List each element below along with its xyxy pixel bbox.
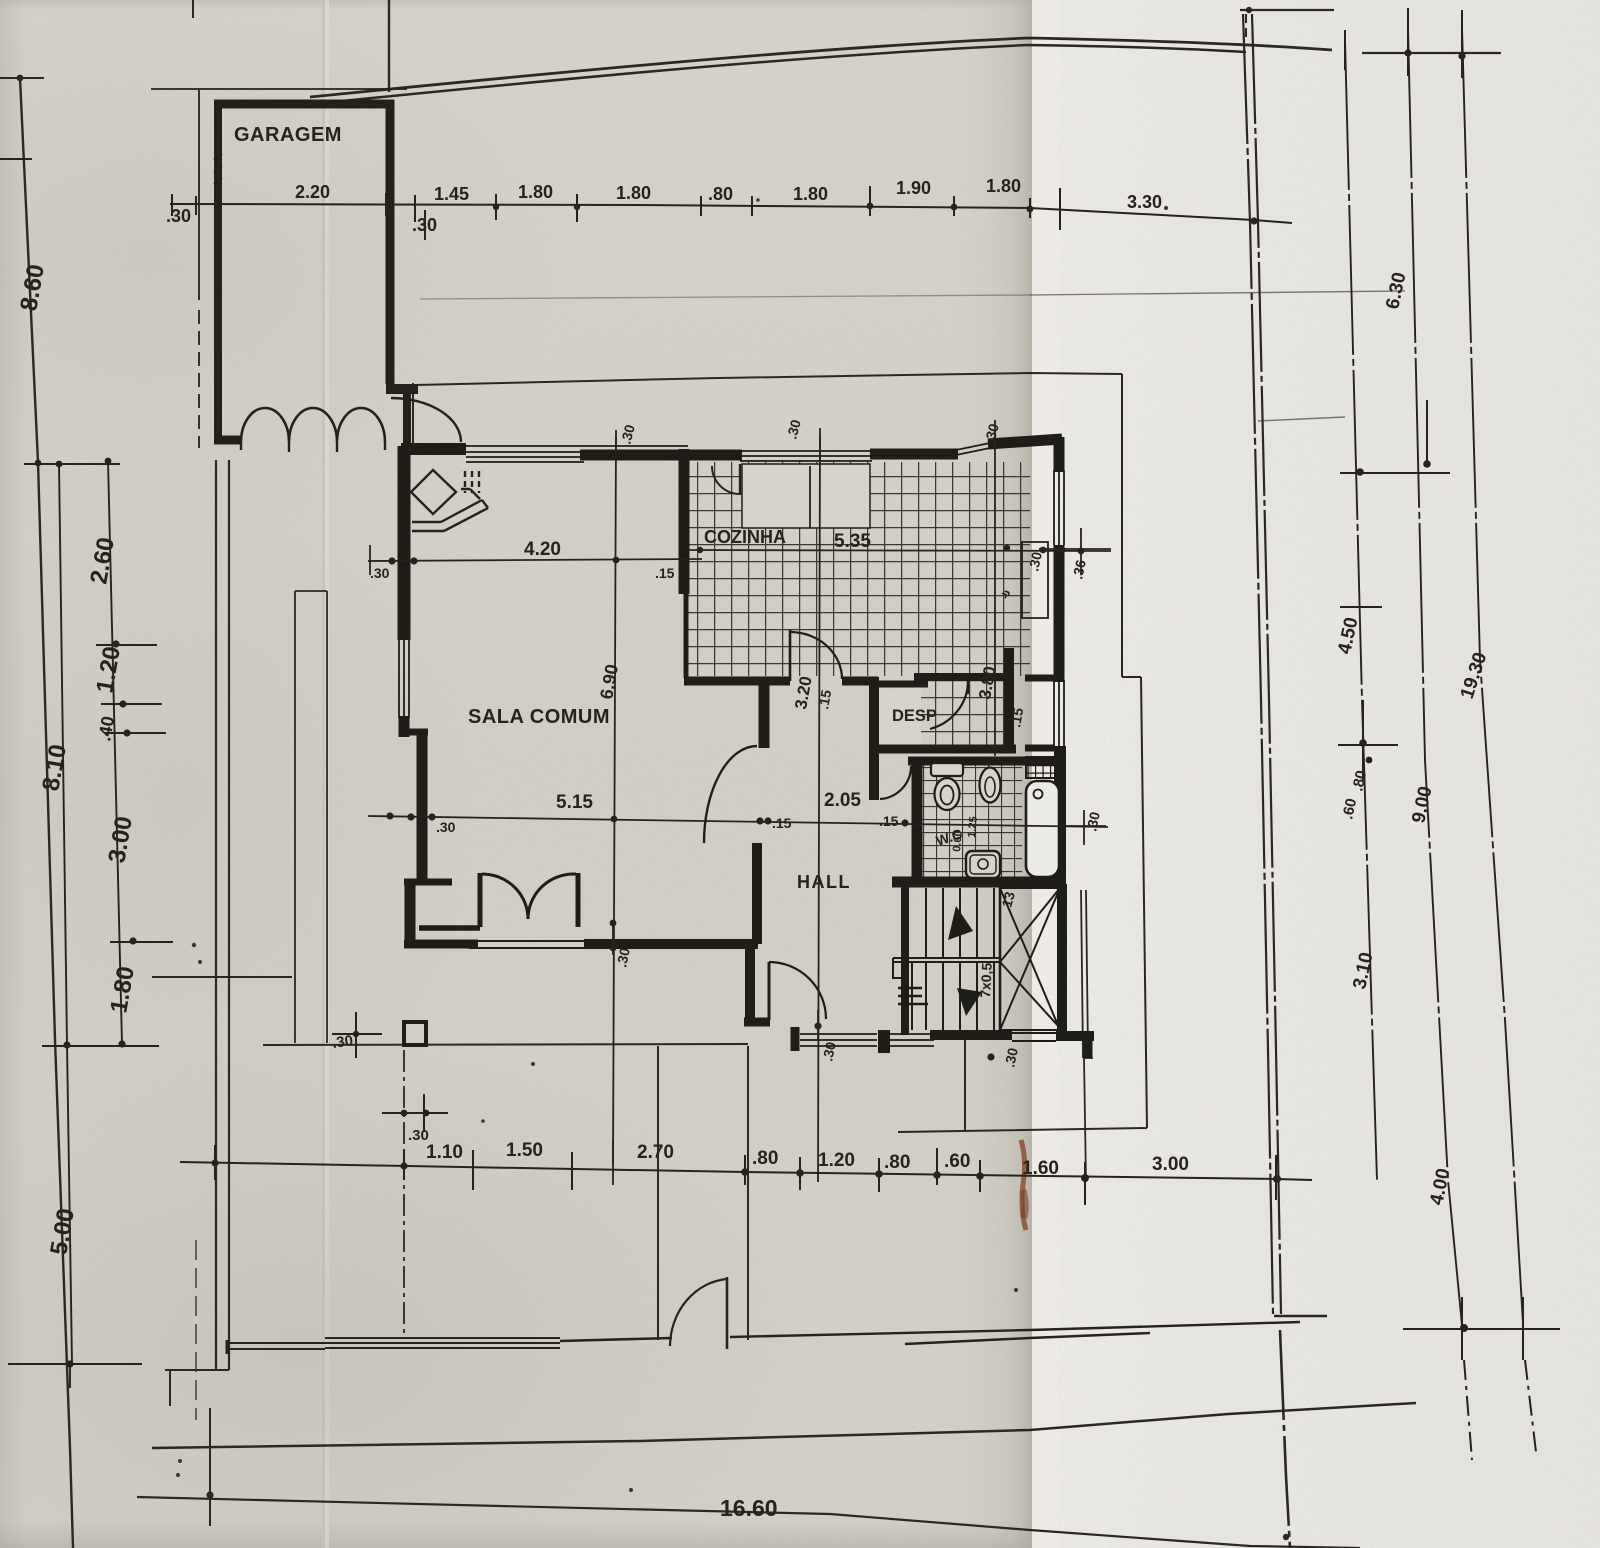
- svg-text:1.10: 1.10: [426, 1142, 463, 1163]
- svg-text:GARAGEM: GARAGEM: [234, 124, 342, 146]
- svg-text:.30: .30: [412, 215, 437, 235]
- svg-text:.30: .30: [370, 565, 390, 581]
- svg-text:2.05: 2.05: [824, 790, 861, 811]
- svg-text:.15: .15: [879, 813, 899, 829]
- svg-text:1.80: 1.80: [616, 183, 651, 203]
- svg-text:16.60: 16.60: [720, 1495, 778, 1521]
- svg-text:2.70: 2.70: [637, 1142, 674, 1163]
- svg-text:.80: .80: [708, 184, 733, 204]
- svg-text:1.25: 1.25: [966, 816, 980, 838]
- svg-text:3.00: 3.00: [1152, 1154, 1189, 1175]
- svg-text:HALL: HALL: [797, 872, 851, 892]
- svg-text:1.80: 1.80: [518, 182, 553, 202]
- svg-text:.30: .30: [436, 819, 456, 835]
- svg-text:.60: .60: [944, 1151, 970, 1172]
- svg-text:.30: .30: [331, 1032, 354, 1052]
- svg-text:1.90: 1.90: [896, 178, 931, 198]
- svg-text:.30: .30: [166, 206, 191, 226]
- svg-text:COZINHA: COZINHA: [704, 527, 786, 547]
- svg-text:5.35: 5.35: [834, 531, 871, 552]
- svg-text:1.45: 1.45: [434, 184, 469, 204]
- svg-text:1.60: 1.60: [1022, 1158, 1059, 1179]
- svg-text:.30: .30: [408, 1127, 429, 1144]
- svg-text:3.30: 3.30: [1127, 192, 1162, 212]
- svg-text:1.80: 1.80: [986, 176, 1021, 196]
- svg-text:1.50: 1.50: [506, 1140, 543, 1161]
- svg-text:SALA COMUM: SALA COMUM: [468, 706, 610, 728]
- svg-text:1.80: 1.80: [793, 184, 828, 204]
- svg-text:.15: .15: [1007, 706, 1026, 728]
- svg-text:DESP: DESP: [892, 707, 937, 725]
- svg-text:.80: .80: [752, 1148, 778, 1169]
- svg-text:0.60: 0.60: [951, 830, 965, 852]
- svg-text:.15: .15: [655, 565, 675, 581]
- svg-text:2.20: 2.20: [295, 182, 330, 202]
- svg-text:7x0,5: 7x0,5: [977, 962, 995, 998]
- svg-text:4.20: 4.20: [524, 539, 561, 560]
- svg-text:5.15: 5.15: [556, 792, 593, 813]
- svg-text:.40: .40: [94, 715, 118, 743]
- svg-text:.80: .80: [884, 1152, 910, 1173]
- svg-text:.15: .15: [815, 688, 834, 710]
- svg-text:1.20: 1.20: [818, 1150, 855, 1171]
- svg-text:.15: .15: [772, 815, 792, 831]
